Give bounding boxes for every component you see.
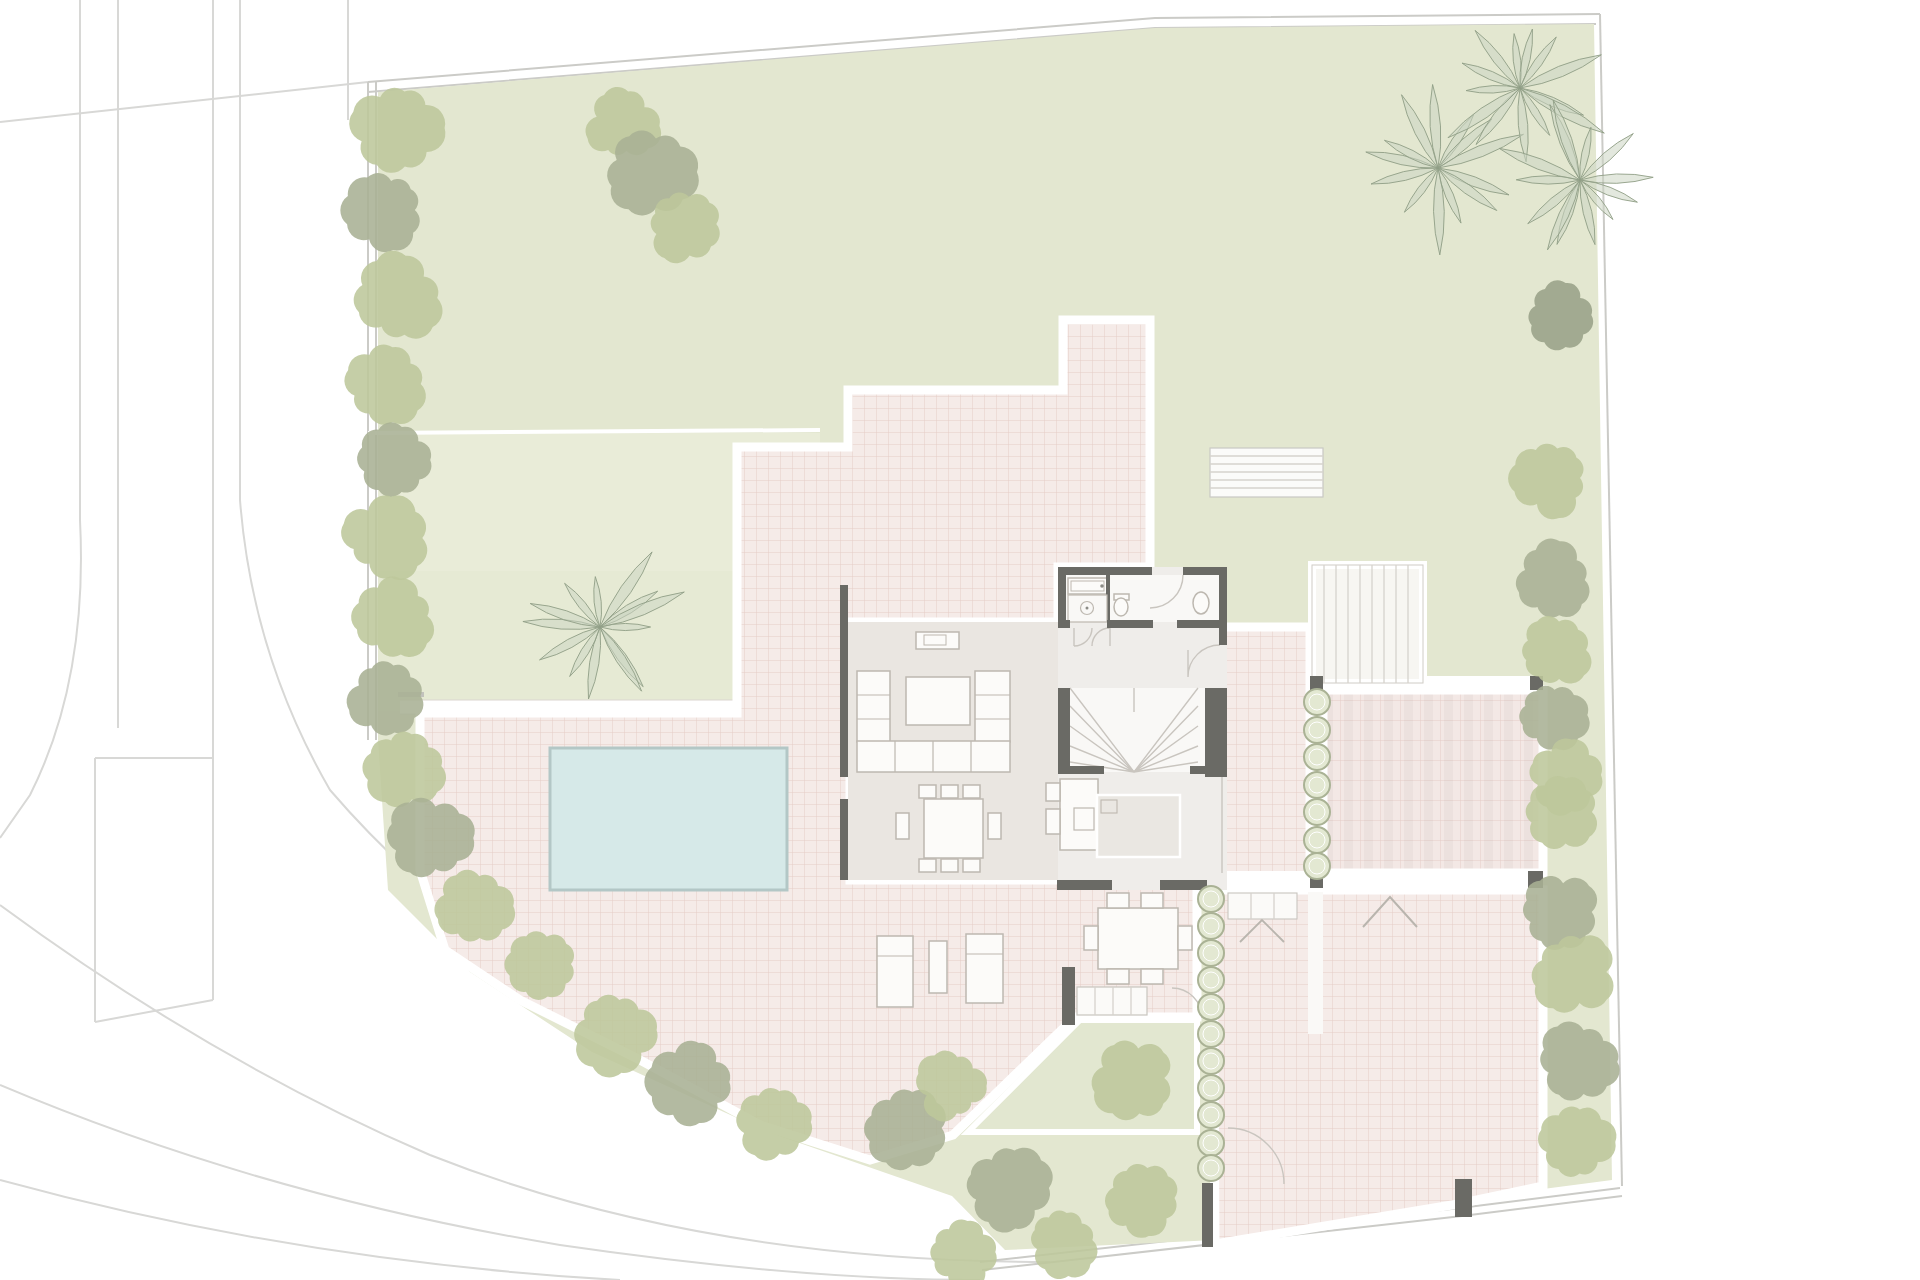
pergola-post bbox=[1310, 676, 1323, 690]
tree-icon bbox=[341, 496, 427, 580]
pergola-court bbox=[1323, 690, 1543, 873]
site-plan-canvas bbox=[0, 0, 1920, 1280]
bush-icon bbox=[1198, 1075, 1224, 1101]
tree-icon bbox=[1092, 1041, 1171, 1121]
garden-wall-stub bbox=[1062, 967, 1075, 1025]
kitchen-unit bbox=[1046, 783, 1060, 801]
bush-icon bbox=[1304, 853, 1330, 879]
bush-icon bbox=[1198, 1155, 1224, 1181]
bush-icon bbox=[1198, 913, 1224, 939]
bush-icon bbox=[1198, 1048, 1224, 1074]
garden-stair-north bbox=[1210, 448, 1323, 497]
outdoor-table bbox=[1098, 908, 1178, 969]
bush-icon bbox=[1304, 827, 1330, 853]
bush-icon bbox=[1304, 717, 1330, 743]
site-plan-drawing bbox=[0, 0, 1920, 1280]
kitchen-island bbox=[1097, 795, 1180, 857]
bush-icon bbox=[1198, 1130, 1224, 1156]
east-terrace bbox=[1217, 627, 1310, 890]
outdoor-stair-east bbox=[1312, 565, 1423, 683]
side-table bbox=[929, 941, 947, 993]
court-path bbox=[1308, 892, 1323, 1034]
steps-south bbox=[1077, 987, 1147, 1015]
bush-icon bbox=[1198, 994, 1224, 1020]
bathtub-icon bbox=[1068, 578, 1107, 594]
shower-icon bbox=[1068, 595, 1107, 622]
sofa-group bbox=[857, 671, 1010, 772]
gate-post bbox=[1455, 1179, 1472, 1217]
bush-icon bbox=[1198, 940, 1224, 966]
sun-lounger bbox=[966, 934, 1003, 1003]
sun-lounger bbox=[877, 936, 913, 1007]
bush-icon bbox=[1304, 689, 1330, 715]
tree-icon bbox=[340, 173, 419, 252]
bush-icon bbox=[1198, 1021, 1224, 1047]
court-steps bbox=[1228, 893, 1297, 919]
stairwell-floor bbox=[1070, 688, 1205, 772]
kitchen-counter bbox=[1060, 779, 1098, 850]
pergola-walkway-south bbox=[1227, 871, 1543, 888]
dining-table bbox=[924, 799, 983, 858]
tv-sideboard bbox=[916, 632, 959, 649]
sink-icon bbox=[1193, 592, 1209, 614]
toilet-icon bbox=[1114, 594, 1129, 616]
gate-post bbox=[1202, 1183, 1213, 1247]
bush-icon bbox=[1198, 886, 1224, 912]
kitchen-unit bbox=[1046, 809, 1060, 834]
bush-icon bbox=[1304, 744, 1330, 770]
bush-icon bbox=[1304, 799, 1330, 825]
bush-icon bbox=[1198, 1102, 1224, 1128]
coffee-table bbox=[906, 677, 970, 725]
bush-icon bbox=[1198, 967, 1224, 993]
bush-icon bbox=[1304, 772, 1330, 798]
swimming-pool bbox=[550, 748, 787, 890]
driveway-court bbox=[1213, 890, 1543, 1244]
